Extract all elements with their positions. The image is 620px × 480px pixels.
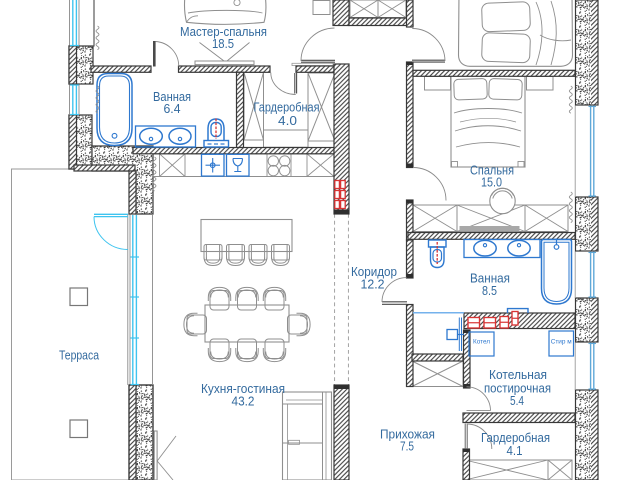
svg-text:6.4: 6.4 — [164, 102, 181, 116]
svg-text:Котел: Котел — [473, 339, 490, 346]
svg-text:7.5: 7.5 — [400, 440, 414, 454]
svg-text:12.2: 12.2 — [361, 278, 385, 292]
svg-text:4.0: 4.0 — [278, 114, 297, 128]
svg-text:Гардеробная: Гардеробная — [254, 101, 320, 115]
svg-text:8.5: 8.5 — [482, 284, 497, 298]
svg-text:Стир м: Стир м — [551, 339, 572, 346]
svg-text:Гардеробная: Гардеробная — [481, 431, 550, 445]
svg-text:Терраса: Терраса — [59, 349, 99, 363]
svg-text:43.2: 43.2 — [232, 395, 255, 409]
svg-text:15.0: 15.0 — [481, 176, 502, 190]
svg-text:Котельная: Котельная — [489, 368, 547, 382]
svg-text:4.1: 4.1 — [507, 444, 523, 458]
svg-text:18.5: 18.5 — [212, 37, 234, 51]
svg-text:5.4: 5.4 — [510, 394, 524, 408]
